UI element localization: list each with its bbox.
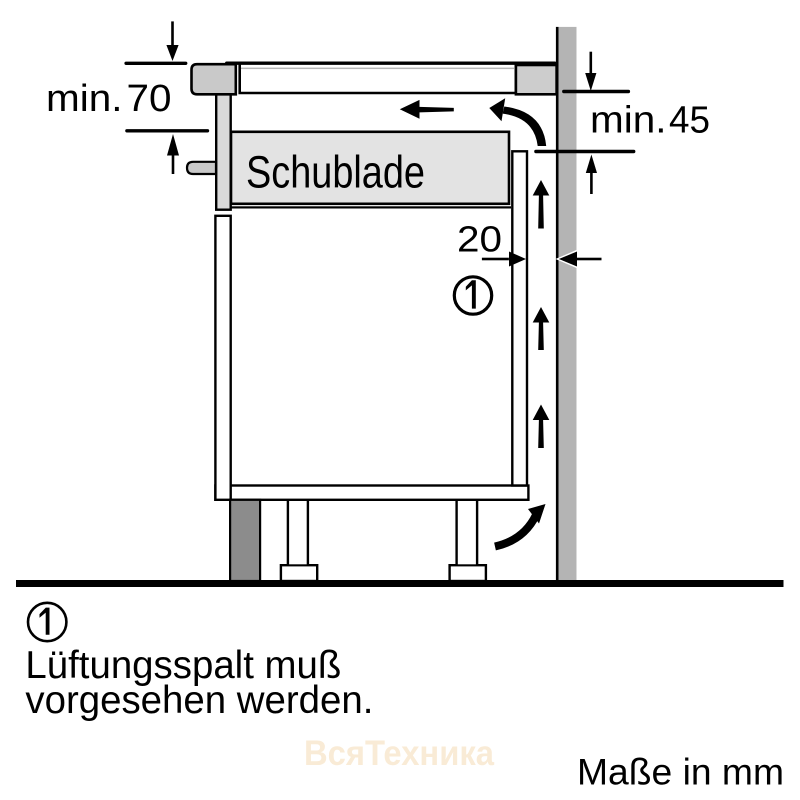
svg-text:20: 20 <box>457 218 502 259</box>
svg-text:vorgesehen werden.: vorgesehen werden. <box>25 679 373 722</box>
svg-text:ВсяТехника: ВсяТехника <box>304 733 494 773</box>
svg-text:min.: min. <box>590 100 667 142</box>
svg-text:70: 70 <box>127 78 172 120</box>
svg-text:45: 45 <box>669 100 710 142</box>
svg-text:Maße in mm: Maße in mm <box>577 751 784 792</box>
svg-text:Schublade: Schublade <box>246 146 425 197</box>
svg-text:min.: min. <box>46 78 123 120</box>
